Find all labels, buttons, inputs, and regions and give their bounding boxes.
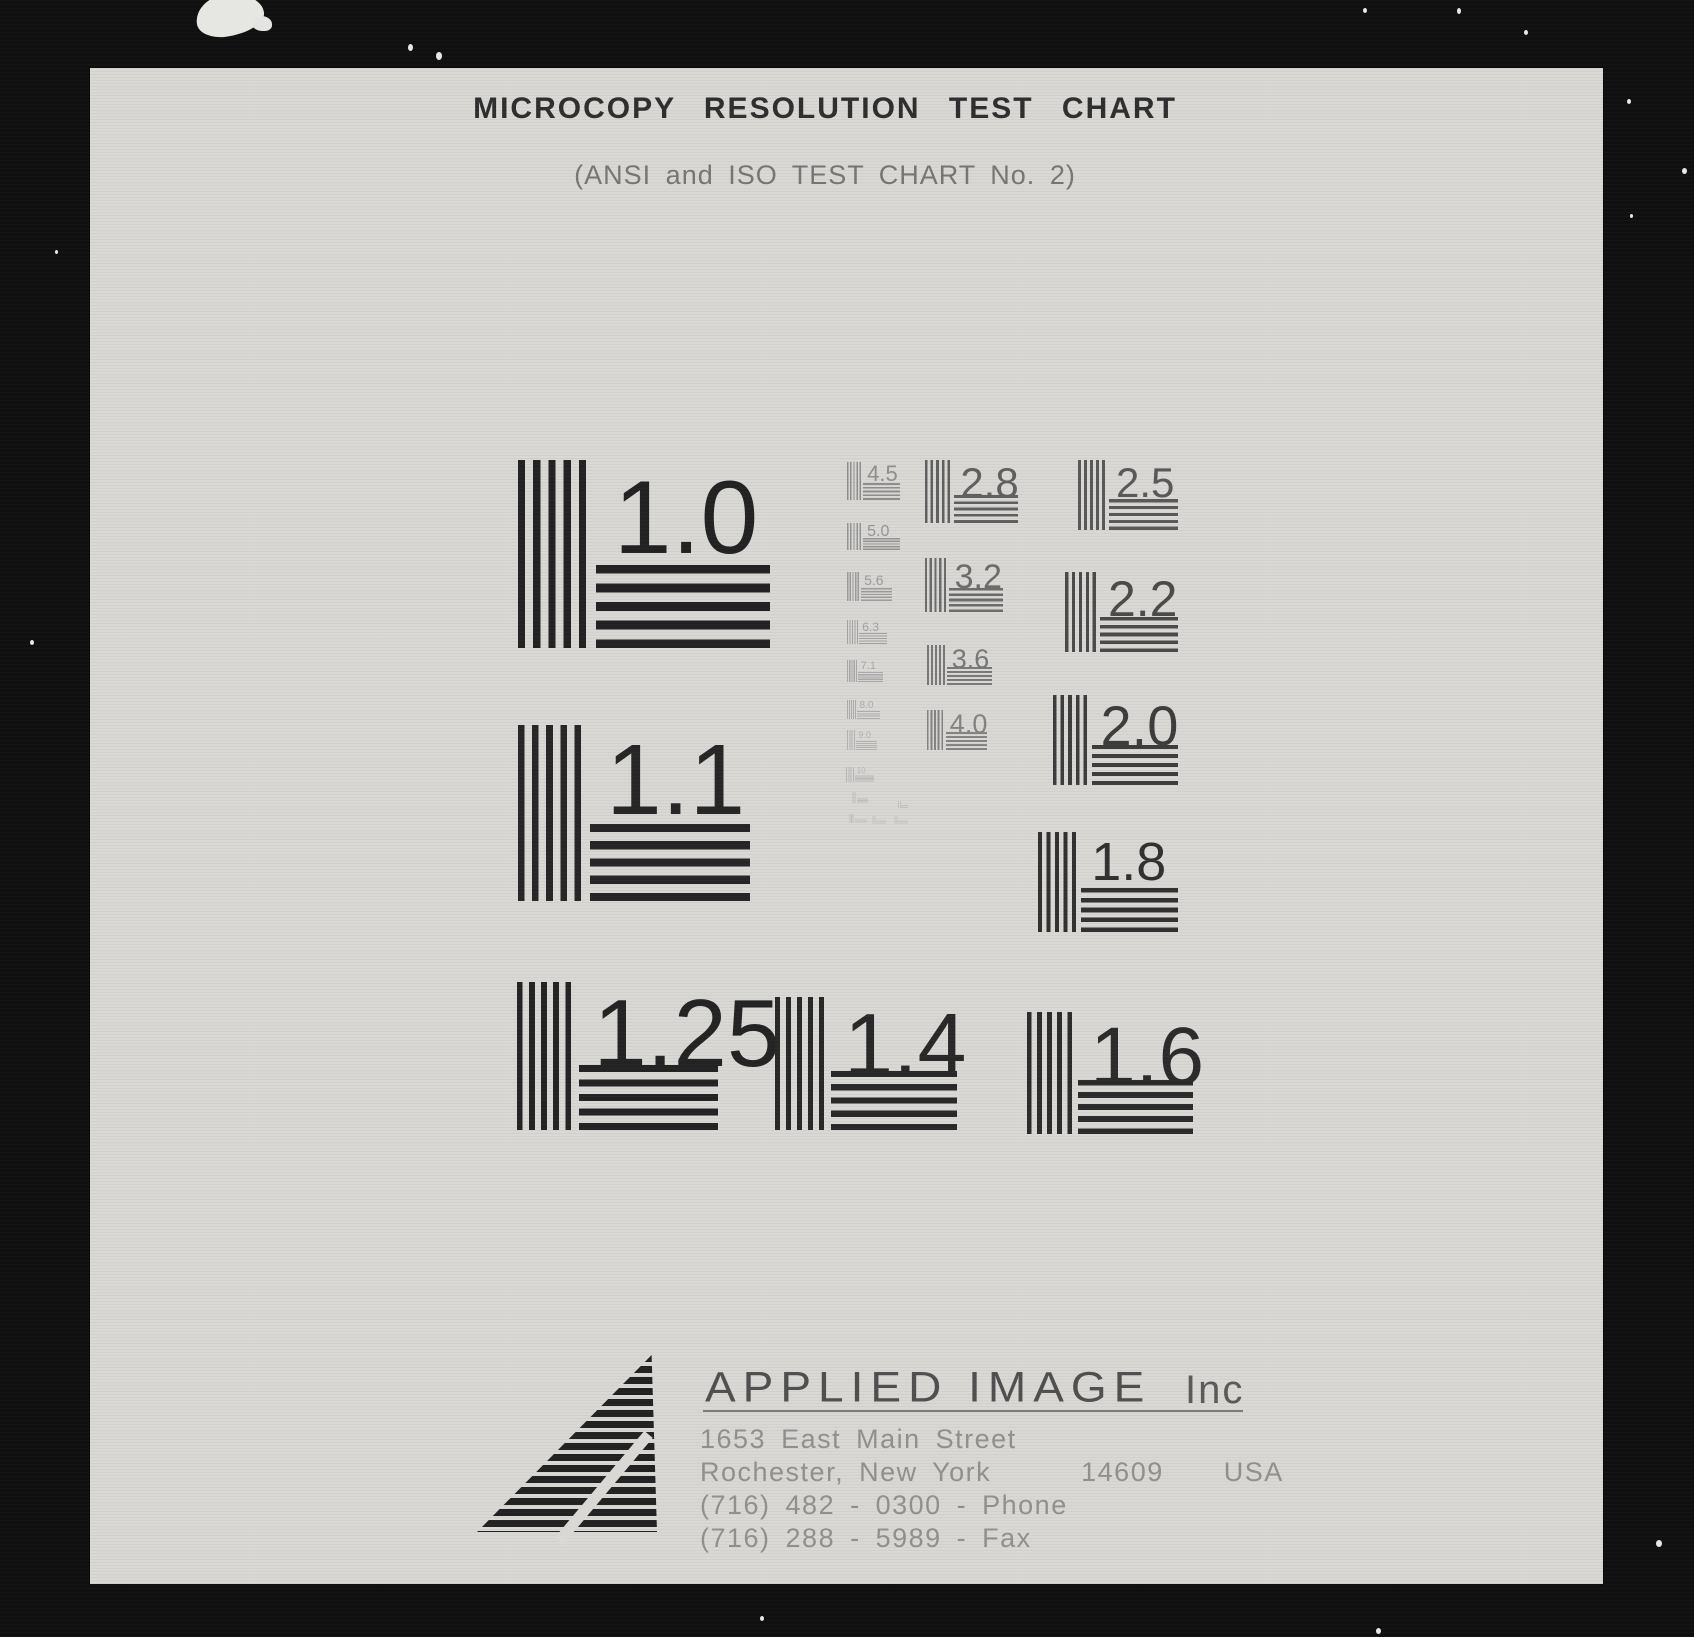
resolution-pattern: 4.5 — [847, 462, 900, 500]
scan-speck — [1363, 8, 1367, 13]
vertical-bar-group — [847, 660, 857, 682]
resolution-pattern: 5.6 — [847, 572, 892, 601]
resolution-pattern — [872, 816, 886, 824]
horizontal-bar-group — [1100, 617, 1178, 652]
scan-speck — [1656, 1540, 1662, 1547]
pattern-label: 1.8 — [1091, 835, 1166, 889]
vertical-bar-group — [847, 462, 861, 500]
address-street: 1653 East Main Street — [700, 1424, 1284, 1457]
resolution-pattern: 1.4 — [775, 997, 957, 1130]
resolution-pattern: 4.0 — [927, 710, 987, 750]
vertical-bar-group — [847, 730, 855, 750]
vertical-bar-group — [847, 572, 859, 601]
resolution-pattern — [898, 801, 908, 808]
vertical-bar-group — [872, 816, 876, 824]
company-name: APPLIED IMAGE — [705, 1362, 1151, 1412]
horizontal-bar-group — [1092, 745, 1178, 785]
resolution-pattern: 3.2 — [925, 558, 1003, 612]
scan-speck — [1524, 30, 1528, 35]
address-city: Rochester, New York 14609 USA — [700, 1457, 1284, 1490]
vertical-bar-group — [894, 816, 898, 824]
resolution-pattern — [852, 792, 868, 803]
address-phone: (716) 482 - 0300 - Phone — [700, 1490, 1284, 1523]
pattern-label: 9.0 — [858, 731, 871, 740]
vertical-bar-group — [518, 460, 586, 648]
logo-underline — [703, 1410, 1243, 1412]
resolution-pattern: 3.6 — [927, 645, 992, 685]
vertical-bar-group — [1065, 572, 1096, 652]
resolution-pattern: 2.5 — [1078, 460, 1178, 530]
horizontal-bar-group — [949, 588, 1003, 612]
horizontal-bar-group — [590, 824, 750, 901]
vertical-bar-group — [517, 982, 571, 1130]
horizontal-bar-group — [857, 711, 880, 719]
resolution-pattern: 9.0 — [847, 730, 877, 750]
vertical-bar-group — [849, 814, 854, 823]
horizontal-bar-group — [1078, 1080, 1193, 1134]
vertical-bar-group — [852, 792, 856, 803]
vertical-bar-group — [775, 997, 824, 1130]
pattern-label: 1.0 — [614, 466, 759, 570]
scan-speck — [760, 1616, 764, 1621]
scan-paper — [90, 68, 1603, 1584]
resolution-pattern: 5.0 — [847, 523, 900, 550]
vertical-bar-group — [927, 645, 945, 685]
vertical-bar-group — [847, 523, 861, 550]
resolution-pattern: 1.6 — [1027, 1012, 1193, 1134]
horizontal-bar-group — [579, 1065, 718, 1130]
vertical-bar-group — [925, 558, 946, 612]
vertical-bar-group — [925, 460, 950, 523]
vertical-bar-group — [847, 620, 858, 644]
horizontal-bar-group — [861, 588, 892, 601]
horizontal-bar-group — [901, 805, 908, 808]
vertical-bar-group — [1078, 460, 1105, 530]
pattern-label: 6.3 — [862, 621, 879, 633]
pattern-label: 2.5 — [1116, 462, 1174, 504]
scanned-page: MICROCOPY RESOLUTION TEST CHART (ANSI an… — [0, 0, 1694, 1637]
horizontal-bar-group — [1109, 499, 1178, 530]
vertical-bar-group — [847, 700, 856, 719]
address-fax: (716) 288 - 5989 - Fax — [700, 1523, 1284, 1556]
vertical-bar-group — [1027, 1012, 1072, 1134]
horizontal-bar-group — [1081, 888, 1178, 932]
horizontal-bar-group — [596, 565, 770, 648]
scan-speck — [408, 44, 413, 51]
vertical-bar-group — [846, 767, 854, 782]
scan-speck — [1630, 214, 1633, 218]
horizontal-bar-group — [858, 672, 883, 682]
resolution-pattern: 1.1 — [518, 725, 750, 901]
horizontal-bar-group — [947, 667, 992, 685]
horizontal-bar-group — [946, 732, 987, 750]
horizontal-bar-group — [857, 798, 868, 803]
resolution-pattern — [849, 814, 867, 823]
horizontal-bar-group — [863, 483, 900, 500]
scan-speck — [1376, 1628, 1381, 1634]
chart-title: MICROCOPY RESOLUTION TEST CHART — [395, 92, 1255, 126]
resolution-pattern: 2.8 — [925, 460, 1018, 523]
resolution-pattern: 6.3 — [847, 620, 887, 644]
pattern-label: 5.6 — [864, 573, 883, 587]
resolution-pattern: 8.0 — [847, 700, 880, 719]
pattern-label: 8.0 — [860, 701, 874, 711]
resolution-pattern: 7.1 — [847, 660, 883, 682]
resolution-pattern: 1.25 — [517, 982, 718, 1130]
vertical-bar-group — [927, 710, 943, 750]
horizontal-bar-group — [954, 495, 1018, 523]
chart-subtitle: (ANSI and ISO TEST CHART No. 2) — [395, 160, 1255, 191]
horizontal-bar-group — [855, 819, 867, 823]
scan-speck — [30, 640, 34, 645]
horizontal-bar-group — [859, 633, 887, 644]
horizontal-bar-group — [831, 1071, 957, 1130]
vertical-bar-group — [1038, 832, 1076, 932]
pattern-label: 7.1 — [861, 661, 876, 672]
resolution-pattern: 10 — [846, 767, 874, 782]
horizontal-bar-group — [898, 820, 908, 824]
scan-speck — [1627, 99, 1631, 104]
resolution-pattern — [894, 816, 908, 824]
horizontal-bar-group — [856, 741, 877, 750]
scan-blob-tail — [252, 16, 272, 31]
company-suffix: Inc — [1185, 1368, 1244, 1413]
scan-speck — [1457, 8, 1461, 14]
horizontal-bar-group — [876, 820, 886, 824]
pattern-label: 4.5 — [867, 463, 898, 485]
vertical-bar-group — [1053, 695, 1087, 785]
pattern-label: 10 — [857, 767, 866, 775]
vertical-bar-group — [518, 725, 581, 901]
horizontal-bar-group — [863, 538, 900, 550]
resolution-pattern: 1.8 — [1038, 832, 1178, 932]
scan-speck — [436, 52, 442, 60]
horizontal-bar-group — [855, 775, 874, 782]
address-block: 1653 East Main Street Rochester, New Yor… — [700, 1424, 1284, 1556]
resolution-pattern: 2.2 — [1065, 572, 1178, 652]
resolution-pattern: 2.0 — [1053, 695, 1178, 785]
pattern-label: 1.1 — [606, 730, 745, 830]
resolution-pattern: 1.0 — [518, 460, 770, 648]
scan-speck — [55, 250, 58, 254]
scan-speck — [1682, 168, 1687, 174]
